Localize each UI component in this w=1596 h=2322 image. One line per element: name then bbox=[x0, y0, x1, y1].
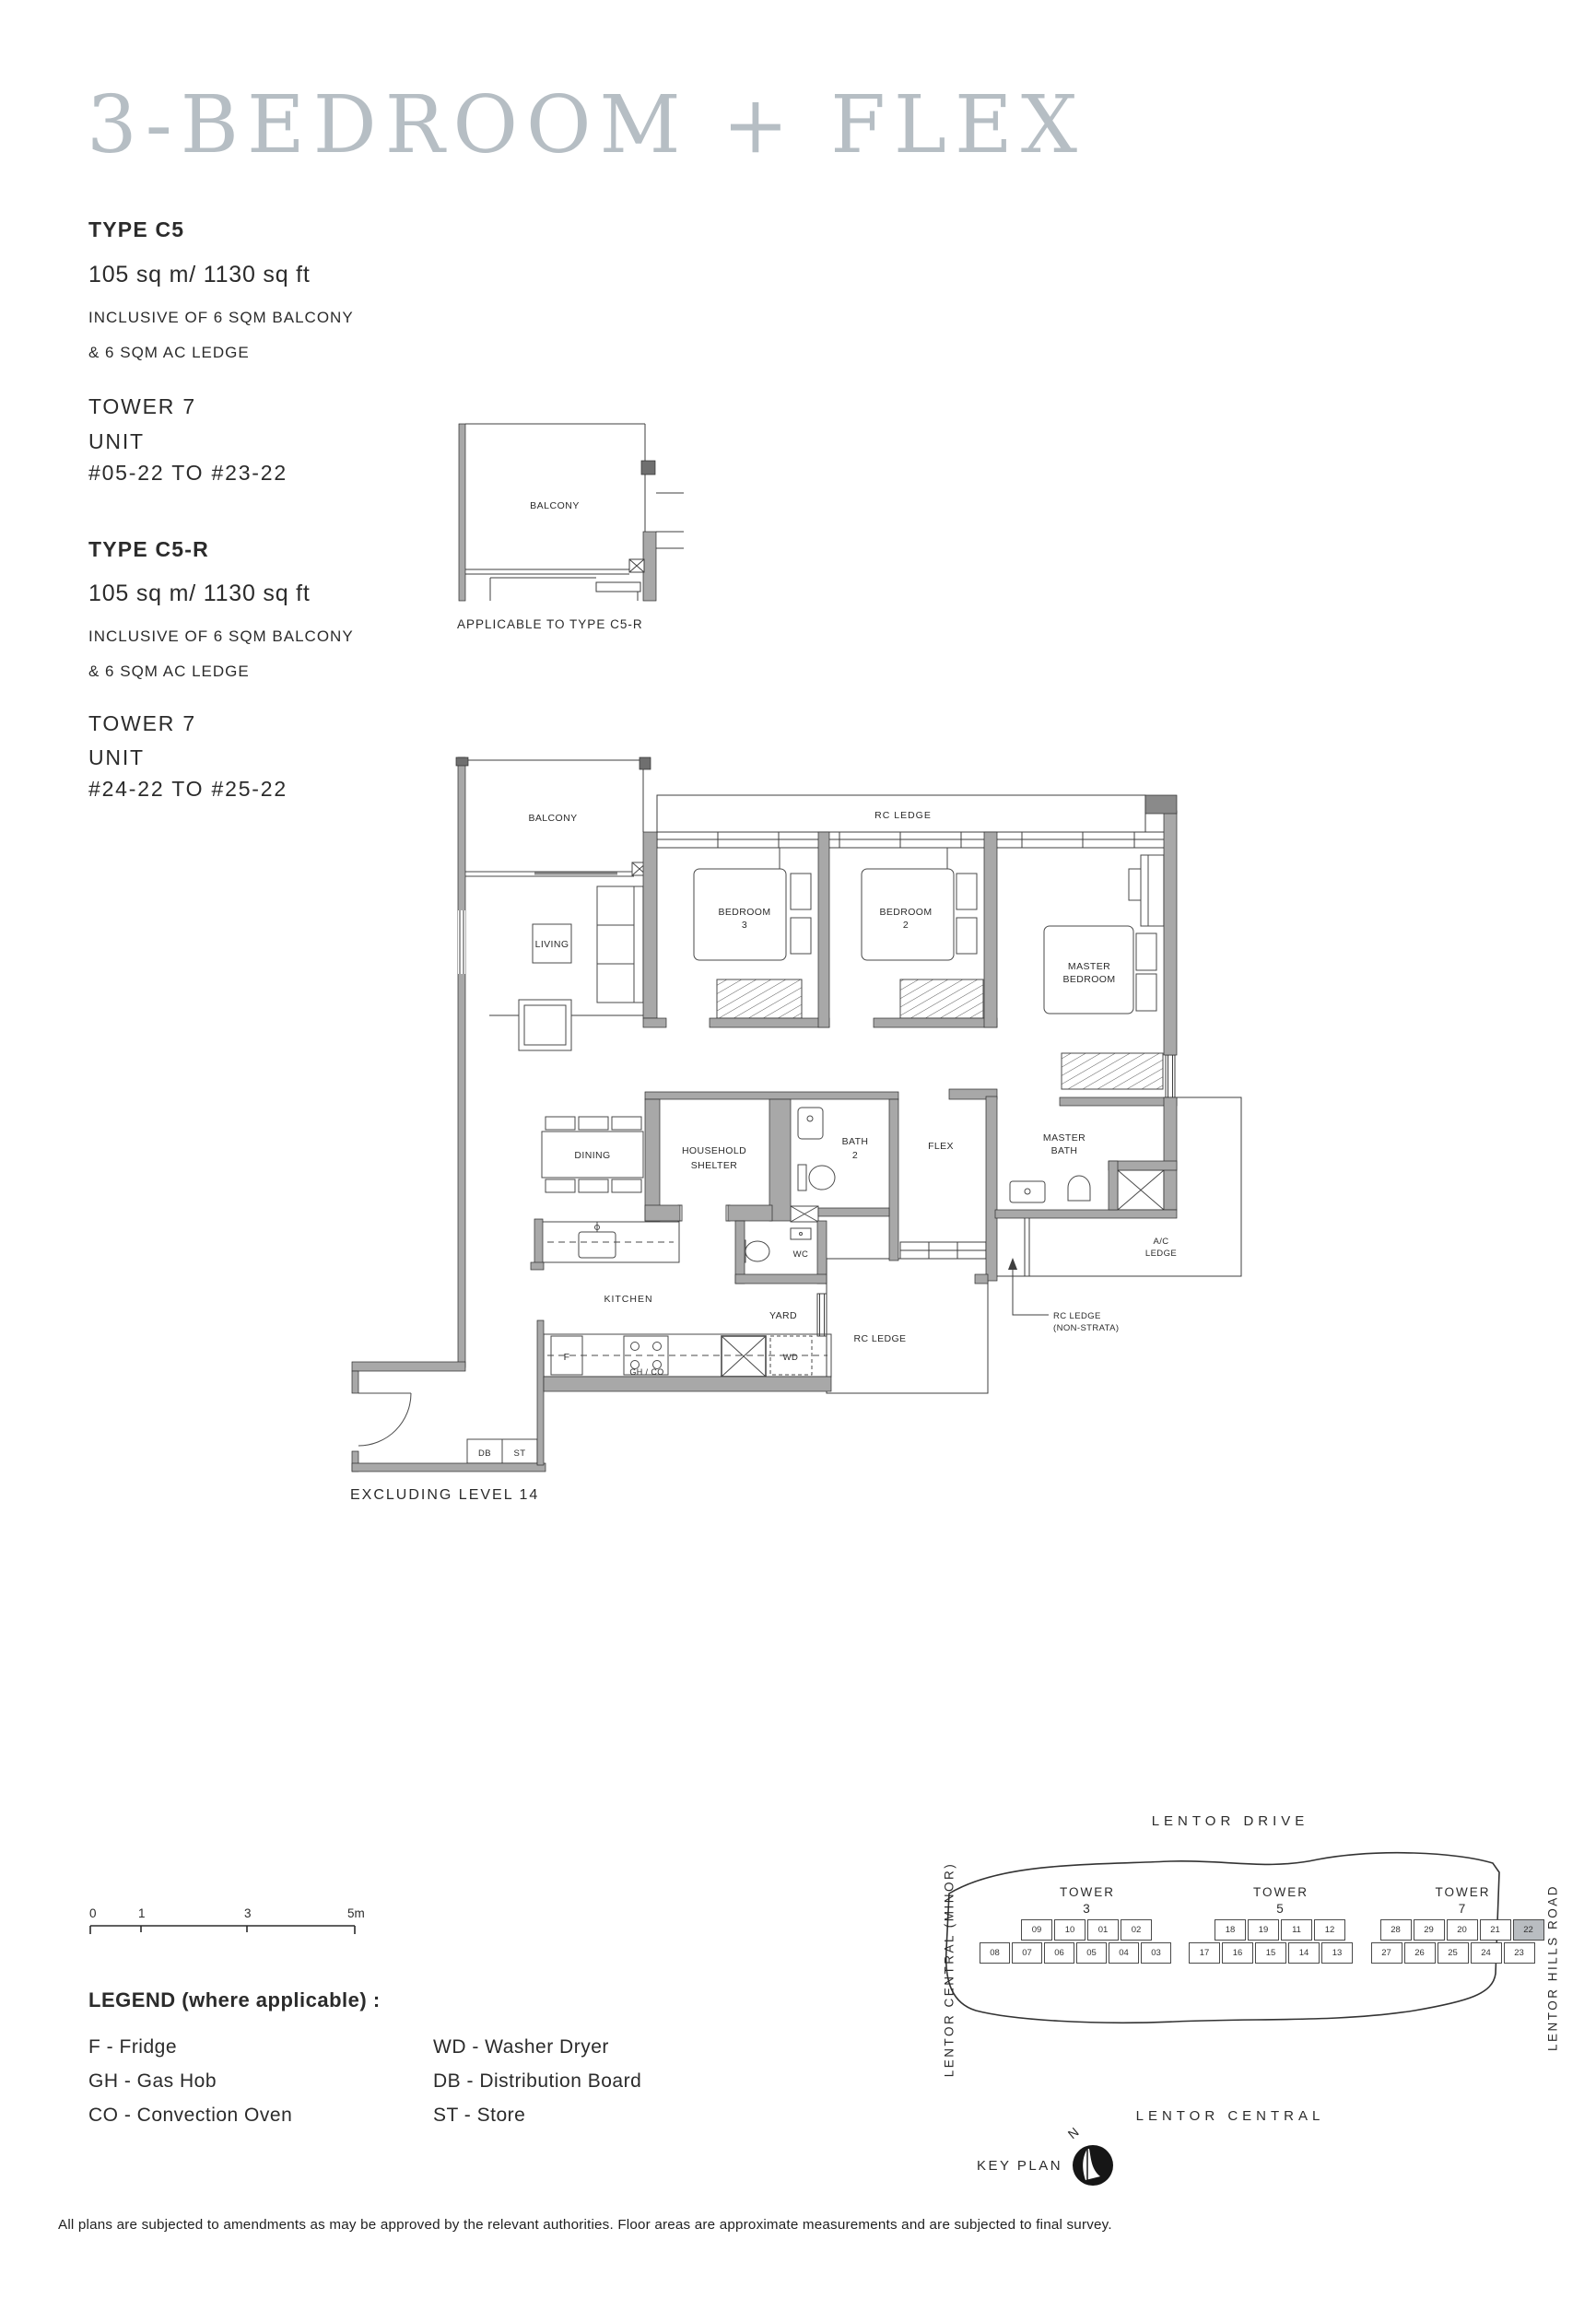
label-rc-ns-1: RC LEDGE bbox=[1053, 1311, 1101, 1321]
wardrobe-bedroom3 bbox=[717, 979, 802, 1018]
sofa-seat bbox=[597, 886, 634, 1003]
road-lentor-central: LENTOR CENTRAL bbox=[954, 2108, 1507, 2124]
label-wc: WC bbox=[793, 1249, 809, 1260]
wardrobe-master bbox=[1062, 1053, 1163, 1089]
unit-14: 14 bbox=[1288, 1942, 1320, 1964]
label-balcony: BALCONY bbox=[529, 813, 578, 824]
label-bedroom3-1: BEDROOM bbox=[718, 907, 770, 918]
label-ghco: GH / CO bbox=[629, 1367, 663, 1377]
excluding-note: EXCLUDING LEVEL 14 bbox=[350, 1487, 539, 1504]
tower-5-cluster: TOWER 5 18 19 11 12 17 16 15 14 13 bbox=[1189, 1884, 1373, 1964]
label-fridge: F bbox=[564, 1352, 570, 1363]
type-c5r-label: TYPE C5-R bbox=[88, 537, 209, 562]
tower-7-cluster: TOWER 7 28 29 20 21 22 27 26 25 24 23 bbox=[1364, 1884, 1562, 1964]
label-household-2: SHELTER bbox=[691, 1160, 737, 1171]
legend-title: LEGEND (where applicable) : bbox=[88, 1988, 381, 2012]
mbath-toilet bbox=[1068, 1176, 1090, 1201]
type-c5-unit-label: UNIT bbox=[88, 429, 145, 454]
unit-10: 10 bbox=[1054, 1919, 1086, 1941]
label-flex: FLEX bbox=[928, 1141, 954, 1152]
tower-3-name: TOWER bbox=[1060, 1885, 1115, 1899]
unit-25: 25 bbox=[1438, 1942, 1469, 1964]
label-kitchen: KITCHEN bbox=[604, 1294, 652, 1305]
type-c5r-inclusive1: INCLUSIVE OF 6 SQM BALCONY bbox=[88, 627, 354, 646]
scale-5m: 5m bbox=[347, 1906, 365, 1920]
label-bedroom3-2: 3 bbox=[742, 920, 747, 931]
type-c5r-tower: TOWER 7 bbox=[88, 711, 196, 736]
brochure-page: { "page": { "title": "3-BEDROOM + FLEX",… bbox=[0, 0, 1596, 2322]
sofa-back bbox=[634, 886, 643, 1003]
label-rc-ledge-bottom: RC LEDGE bbox=[854, 1333, 907, 1344]
type-c5-label: TYPE C5 bbox=[88, 217, 184, 242]
tower-5-name: TOWER bbox=[1253, 1885, 1308, 1899]
label-st: ST bbox=[514, 1448, 526, 1459]
unit-17: 17 bbox=[1189, 1942, 1220, 1964]
unit-24: 24 bbox=[1471, 1942, 1502, 1964]
tower-7-name: TOWER bbox=[1436, 1885, 1491, 1899]
label-ac-2: LEDGE bbox=[1145, 1249, 1177, 1259]
unit-03: 03 bbox=[1141, 1942, 1171, 1964]
type-c5r-inclusive2: & 6 SQM AC LEDGE bbox=[88, 663, 250, 681]
tower-3-num: 3 bbox=[1083, 1902, 1092, 1916]
bath2-toilet-tank bbox=[798, 1165, 806, 1190]
unit-12: 12 bbox=[1314, 1919, 1345, 1941]
fragment-caption: APPLICABLE TO TYPE C5-R bbox=[457, 617, 643, 631]
floor-plan: BALCONY RC LEDGE BEDROOM 3 BEDROOM 2 MAS… bbox=[350, 737, 1262, 1483]
fragment-corner bbox=[641, 461, 655, 475]
unit-01: 01 bbox=[1087, 1919, 1119, 1941]
label-mbath-2: BATH bbox=[1051, 1145, 1078, 1156]
unit-27: 27 bbox=[1371, 1942, 1402, 1964]
scale-3: 3 bbox=[244, 1906, 252, 1920]
tower-3-cluster: TOWER 3 09 10 01 02 08 07 06 05 04 03 bbox=[991, 1884, 1184, 1964]
legend-item-db: DB - Distribution Board bbox=[433, 2070, 641, 2093]
page-title: 3-BEDROOM + FLEX bbox=[87, 79, 1086, 171]
label-household-1: HOUSEHOLD bbox=[682, 1145, 746, 1156]
type-c5-inclusive2: & 6 SQM AC LEDGE bbox=[88, 344, 250, 362]
label-living: LIVING bbox=[535, 939, 569, 950]
legend-item-gashob: GH - Gas Hob bbox=[88, 2070, 217, 2093]
unit-29: 29 bbox=[1414, 1919, 1445, 1941]
legend-item-store: ST - Store bbox=[433, 2105, 525, 2127]
unit-05: 05 bbox=[1076, 1942, 1107, 1964]
label-bedroom2-1: BEDROOM bbox=[879, 907, 932, 918]
scale-0: 0 bbox=[89, 1906, 97, 1920]
label-yard: YARD bbox=[769, 1310, 797, 1321]
label-bedroom2-2: 2 bbox=[903, 920, 909, 931]
label-db: DB bbox=[478, 1448, 491, 1459]
tower-7-num: 7 bbox=[1459, 1902, 1468, 1916]
entry-door-arc bbox=[358, 1393, 411, 1446]
north-compass-icon: N bbox=[1060, 2127, 1124, 2196]
unit-16: 16 bbox=[1222, 1942, 1253, 1964]
tv-console bbox=[519, 1000, 571, 1050]
label-bath2-1: BATH bbox=[842, 1136, 869, 1147]
unit-26: 26 bbox=[1404, 1942, 1436, 1964]
type-c5r-area: 105 sq m/ 1130 sq ft bbox=[88, 580, 311, 607]
label-master-2: BEDROOM bbox=[1062, 974, 1115, 985]
key-plan: LENTOR DRIVE LENTOR CENTRAL (MINOR) LENT… bbox=[898, 1797, 1596, 2211]
unit-18: 18 bbox=[1215, 1919, 1246, 1941]
unit-02: 02 bbox=[1121, 1919, 1152, 1941]
road-lentor-hills: LENTOR HILLS ROAD bbox=[1546, 1830, 1560, 2106]
legend-item-fridge: F - Fridge bbox=[88, 2036, 177, 2058]
bath2-toilet bbox=[809, 1166, 835, 1190]
road-lentor-central-minor: LENTOR CENTRAL (MINOR) bbox=[943, 1813, 956, 2127]
furniture bbox=[358, 848, 1164, 1463]
walls bbox=[352, 757, 1177, 1472]
fragment-wall-left bbox=[459, 424, 465, 601]
unit-13: 13 bbox=[1321, 1942, 1353, 1964]
type-c5-tower: TOWER 7 bbox=[88, 394, 196, 419]
label-rc-ledge-top: RC LEDGE bbox=[874, 810, 932, 821]
type-c5-area: 105 sq m/ 1130 sq ft bbox=[88, 262, 311, 288]
wall-windows bbox=[458, 910, 465, 974]
fragment-balcony-label: BALCONY bbox=[530, 500, 580, 511]
mbath-sink bbox=[1010, 1181, 1045, 1202]
label-dining: DINING bbox=[574, 1150, 610, 1161]
key-plan-boundary bbox=[898, 1797, 1596, 2211]
unit-07: 07 bbox=[1012, 1942, 1042, 1964]
type-c5-unit-range: #05-22 TO #23-22 bbox=[88, 461, 288, 486]
legend-item-oven: CO - Convection Oven bbox=[88, 2105, 292, 2127]
type-c5-inclusive1: INCLUSIVE OF 6 SQM BALCONY bbox=[88, 309, 354, 327]
unit-06: 06 bbox=[1044, 1942, 1074, 1964]
north-label: N bbox=[1065, 2127, 1082, 2141]
fragment-wall-right bbox=[643, 532, 656, 601]
unit-28: 28 bbox=[1380, 1919, 1412, 1941]
key-plan-label: KEY PLAN bbox=[977, 2158, 1062, 2174]
type-c5r-unit-label: UNIT bbox=[88, 745, 145, 770]
road-lentor-drive: LENTOR DRIVE bbox=[898, 1813, 1562, 1829]
unit-04: 04 bbox=[1109, 1942, 1139, 1964]
label-ac-1: A/C bbox=[1153, 1237, 1168, 1247]
label-bath2-2: 2 bbox=[852, 1150, 858, 1161]
legend-item-wd: WD - Washer Dryer bbox=[433, 2036, 609, 2058]
label-wd: WD bbox=[783, 1353, 799, 1363]
unit-15: 15 bbox=[1255, 1942, 1286, 1964]
label-mbath-1: MASTER bbox=[1043, 1132, 1086, 1143]
unit-23: 23 bbox=[1504, 1942, 1535, 1964]
unit-21: 21 bbox=[1480, 1919, 1511, 1941]
label-rc-ns-2: (NON-STRATA) bbox=[1053, 1323, 1119, 1333]
fragment-ac-box bbox=[629, 559, 644, 572]
scale-bar: 0 1 3 5m bbox=[88, 1906, 373, 1944]
unit-11: 11 bbox=[1281, 1919, 1312, 1941]
bath2-sink bbox=[798, 1108, 823, 1139]
fragment-plan-c5r: BALCONY APPLICABLE TO TYPE C5-R bbox=[452, 415, 710, 645]
type-c5r-unit-range: #24-22 TO #25-22 bbox=[88, 777, 288, 802]
unit-22-highlighted: 22 bbox=[1513, 1919, 1544, 1941]
wardrobe-bedroom2 bbox=[900, 979, 983, 1018]
label-master-1: MASTER bbox=[1068, 961, 1110, 972]
unit-20: 20 bbox=[1447, 1919, 1478, 1941]
tower-5-num: 5 bbox=[1276, 1902, 1285, 1916]
unit-09: 09 bbox=[1021, 1919, 1052, 1941]
kitchen-sink bbox=[579, 1232, 616, 1258]
scale-1: 1 bbox=[138, 1906, 146, 1920]
disclaimer-footer: All plans are subjected to amendments as… bbox=[58, 2217, 1551, 2233]
rc-ns-arrow bbox=[1008, 1258, 1049, 1315]
unit-19: 19 bbox=[1248, 1919, 1279, 1941]
unit-08: 08 bbox=[980, 1942, 1010, 1964]
wc-toilet bbox=[745, 1241, 769, 1261]
